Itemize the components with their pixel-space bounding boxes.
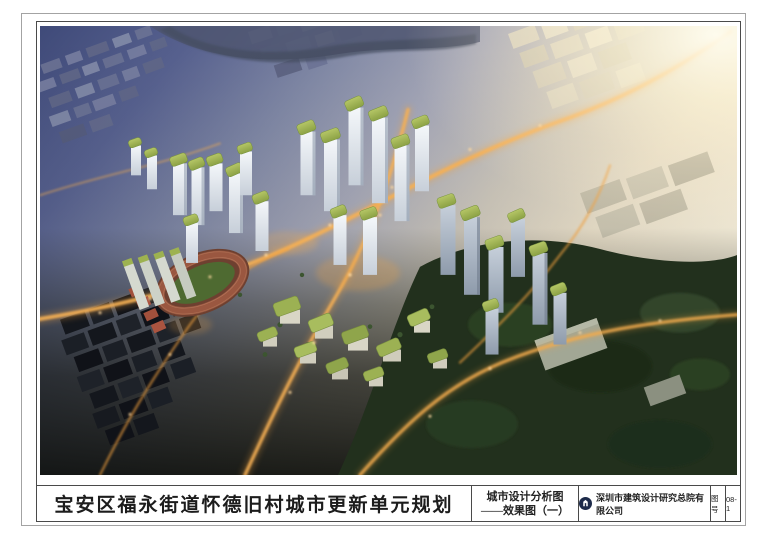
sheet-number-value: 08-1 [725,486,740,521]
company-name: 深圳市建筑设计研究总院有限公司 [596,491,710,517]
aerial-rendering-svg [40,26,737,475]
company-cell: 深圳市建筑设计研究总院有限公司 [578,486,710,521]
drawing-name: 城市设计分析图 ——效果图（一） [471,486,578,521]
title-block: 宝安区福永街道怀德旧村城市更新单元规划 城市设计分析图 ——效果图（一） 深圳市… [37,485,740,521]
aerial-rendering [40,26,737,475]
company-logo-icon [579,497,592,510]
sheet-outer-border: 宝安区福永街道怀德旧村城市更新单元规划 城市设计分析图 ——效果图（一） 深圳市… [21,13,746,526]
drawing-name-line2: ——效果图（一） [481,504,569,518]
sheet-inner-frame: 宝安区福永街道怀德旧村城市更新单元规划 城市设计分析图 ——效果图（一） 深圳市… [36,21,741,522]
project-title: 宝安区福永街道怀德旧村城市更新单元规划 [37,486,471,521]
drawing-name-line1: 城市设计分析图 [487,490,564,504]
sun-glare [40,26,737,475]
sheet-number-label: 图号 [710,486,725,521]
